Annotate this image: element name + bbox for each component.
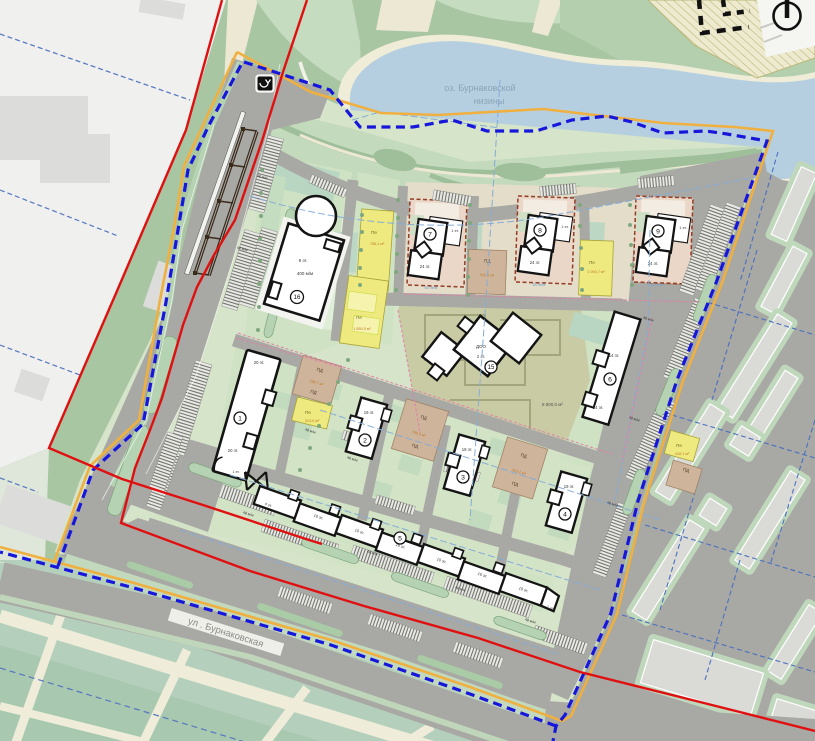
svg-text:16: 16 bbox=[294, 294, 301, 301]
svg-text:2 эт.: 2 эт. bbox=[477, 354, 485, 359]
svg-text:ДОО: ДОО bbox=[476, 344, 487, 349]
svg-text:ПД: ПД bbox=[484, 258, 490, 263]
svg-text:6: 6 bbox=[608, 376, 612, 383]
svg-text:19 эт.: 19 эт. bbox=[564, 484, 574, 489]
svg-text:9: 9 bbox=[656, 228, 660, 235]
svg-text:низины: низины bbox=[474, 96, 505, 106]
svg-text:50 м/м: 50 м/м bbox=[425, 285, 438, 290]
svg-text:313,0 м²: 313,0 м² bbox=[305, 419, 320, 423]
svg-text:3: 3 bbox=[461, 474, 465, 481]
svg-text:оз. Бурнаковской: оз. Бурнаковской bbox=[444, 83, 515, 93]
svg-text:7: 7 bbox=[428, 231, 432, 238]
svg-text:50 м/м: 50 м/м bbox=[651, 282, 664, 287]
svg-text:14 эт.: 14 эт. bbox=[609, 353, 619, 358]
svg-text:20 эт.: 20 эт. bbox=[254, 360, 264, 365]
svg-text:Пе: Пе bbox=[356, 315, 362, 320]
svg-text:1: 1 bbox=[238, 415, 242, 422]
svg-text:8: 8 bbox=[538, 227, 542, 234]
svg-text:1 эт.: 1 эт. bbox=[561, 225, 568, 229]
svg-text:8 800,0 м²: 8 800,0 м² bbox=[542, 402, 563, 407]
svg-text:Пе: Пе bbox=[589, 260, 595, 265]
svg-text:20 эт.: 20 эт. bbox=[228, 448, 238, 453]
svg-text:14 эт.: 14 эт. bbox=[593, 405, 603, 410]
svg-text:15: 15 bbox=[488, 365, 495, 371]
svg-text:9 эт.: 9 эт. bbox=[299, 258, 308, 263]
svg-text:19 эт.: 19 эт. bbox=[364, 410, 374, 415]
svg-text:5: 5 bbox=[398, 535, 402, 542]
svg-text:1 эт.: 1 эт. bbox=[451, 229, 458, 233]
svg-text:1 000,7 м²: 1 000,7 м² bbox=[587, 270, 605, 274]
svg-text:4: 4 bbox=[563, 511, 567, 518]
svg-text:50 м/м: 50 м/м bbox=[533, 282, 546, 287]
svg-text:2: 2 bbox=[363, 437, 367, 444]
svg-text:24 эт.: 24 эт. bbox=[420, 264, 430, 269]
svg-text:1 эт.: 1 эт. bbox=[679, 226, 686, 230]
svg-text:Пе: Пе bbox=[676, 443, 682, 448]
svg-text:418,1 м²: 418,1 м² bbox=[675, 452, 690, 456]
svg-text:19 эт.: 19 эт. bbox=[462, 447, 472, 452]
svg-text:400 м/м: 400 м/м bbox=[297, 271, 313, 276]
svg-text:Пе: Пе bbox=[371, 230, 377, 235]
svg-text:756,1 м²: 756,1 м² bbox=[370, 242, 385, 246]
svg-text:24 эт.: 24 эт. bbox=[530, 260, 540, 265]
svg-text:Пе: Пе bbox=[305, 410, 311, 415]
svg-text:1 850,0 м²: 1 850,0 м² bbox=[353, 327, 371, 331]
svg-text:1 эт.: 1 эт. bbox=[233, 470, 240, 474]
